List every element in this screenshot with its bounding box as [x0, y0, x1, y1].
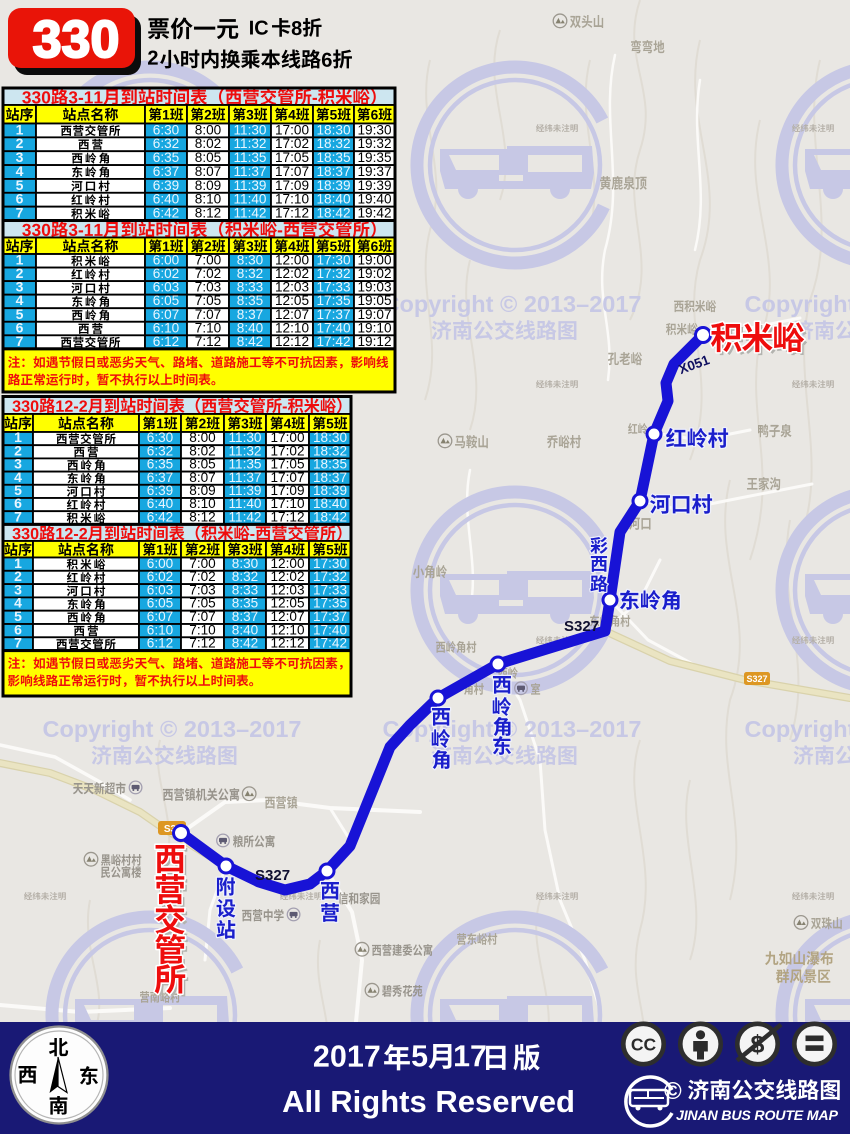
svg-text:19:35: 19:35 [357, 150, 391, 165]
svg-text:S327: S327 [746, 674, 767, 684]
svg-text:12:12: 12:12 [275, 334, 309, 349]
svg-text:11:35: 11:35 [233, 150, 266, 165]
svg-text:11:30: 11:30 [233, 122, 266, 137]
svg-text:18:30: 18:30 [316, 122, 350, 137]
svg-text:S327: S327 [564, 618, 599, 635]
svg-text:17:42: 17:42 [316, 334, 350, 349]
svg-text:6:12: 6:12 [147, 636, 173, 651]
svg-text:11:32: 11:32 [233, 136, 266, 151]
svg-text:6:42: 6:42 [153, 206, 179, 221]
svg-text:11:42: 11:42 [228, 509, 261, 524]
svg-text:19:40: 19:40 [357, 192, 391, 207]
svg-text:11:42: 11:42 [233, 206, 266, 221]
svg-text:8:10: 8:10 [195, 192, 222, 207]
svg-text:8:42: 8:42 [237, 334, 263, 349]
svg-text:6:40: 6:40 [153, 192, 180, 207]
svg-text:6:32: 6:32 [153, 136, 179, 151]
svg-text:7:12: 7:12 [195, 334, 221, 349]
svg-text:19:39: 19:39 [357, 178, 391, 193]
svg-text:19:32: 19:32 [357, 136, 391, 151]
svg-text:11:40: 11:40 [233, 192, 266, 207]
svg-text:8:42: 8:42 [232, 636, 258, 651]
svg-text:19:42: 19:42 [357, 206, 391, 221]
svg-text:Copyright © 2013–2017: Copyright © 2013–2017 [383, 291, 642, 317]
svg-text:7: 7 [16, 333, 24, 349]
svg-text:18:42: 18:42 [316, 206, 350, 221]
svg-text:6:30: 6:30 [153, 122, 180, 137]
svg-text:8:12: 8:12 [195, 206, 221, 221]
svg-text:7: 7 [14, 635, 22, 651]
svg-text:8:02: 8:02 [195, 136, 221, 151]
svg-text:17:42: 17:42 [313, 636, 347, 651]
svg-text:CC: CC [631, 1035, 657, 1055]
svg-text:7: 7 [14, 508, 22, 524]
svg-text:17:10: 17:10 [275, 192, 309, 207]
svg-text:JINAN BUS ROUTE MAP: JINAN BUS ROUTE MAP [676, 1108, 838, 1124]
svg-text:6:37: 6:37 [153, 164, 179, 179]
svg-text:8:12: 8:12 [189, 509, 215, 524]
svg-text:All Rights Reserved: All Rights Reserved [282, 1084, 575, 1119]
svg-text:6:35: 6:35 [153, 150, 179, 165]
svg-text:18:35: 18:35 [316, 150, 350, 165]
svg-text:11:39: 11:39 [233, 178, 266, 193]
svg-text:19:12: 19:12 [357, 334, 391, 349]
svg-text:8:09: 8:09 [195, 178, 221, 193]
svg-text:7:12: 7:12 [189, 636, 215, 651]
svg-text:18:32: 18:32 [316, 136, 350, 151]
svg-text:7: 7 [16, 205, 24, 221]
svg-text:8:00: 8:00 [195, 122, 222, 137]
svg-text:17:12: 17:12 [275, 206, 309, 221]
svg-text:17:00: 17:00 [275, 122, 309, 137]
svg-text:8:07: 8:07 [195, 164, 221, 179]
svg-text:17:02: 17:02 [275, 136, 309, 151]
svg-text:Copyright © 2013–2017: Copyright © 2013–2017 [745, 291, 850, 317]
svg-text:Copyright © 2013–2017: Copyright © 2013–2017 [745, 716, 850, 742]
svg-text:18:37: 18:37 [316, 164, 350, 179]
svg-text:6:12: 6:12 [153, 334, 179, 349]
svg-text:18:39: 18:39 [316, 178, 350, 193]
svg-text:17:07: 17:07 [275, 164, 309, 179]
svg-text:17:12: 17:12 [270, 509, 304, 524]
svg-text:18:42: 18:42 [313, 509, 347, 524]
svg-text:19:37: 19:37 [357, 164, 391, 179]
svg-text:Copyright © 2013–2017: Copyright © 2013–2017 [43, 716, 302, 742]
svg-text:17:05: 17:05 [275, 150, 309, 165]
svg-text:330: 330 [33, 11, 120, 69]
svg-text:12:12: 12:12 [270, 636, 304, 651]
svg-text:6:42: 6:42 [147, 509, 173, 524]
svg-text:11:37: 11:37 [233, 164, 266, 179]
svg-text:©: © [664, 1078, 682, 1105]
svg-text:19:30: 19:30 [357, 122, 391, 137]
svg-text:18:40: 18:40 [316, 192, 350, 207]
svg-text:17:09: 17:09 [275, 178, 309, 193]
svg-text:S327: S327 [255, 867, 290, 884]
svg-text:6:39: 6:39 [153, 178, 179, 193]
svg-text:8:05: 8:05 [195, 150, 221, 165]
